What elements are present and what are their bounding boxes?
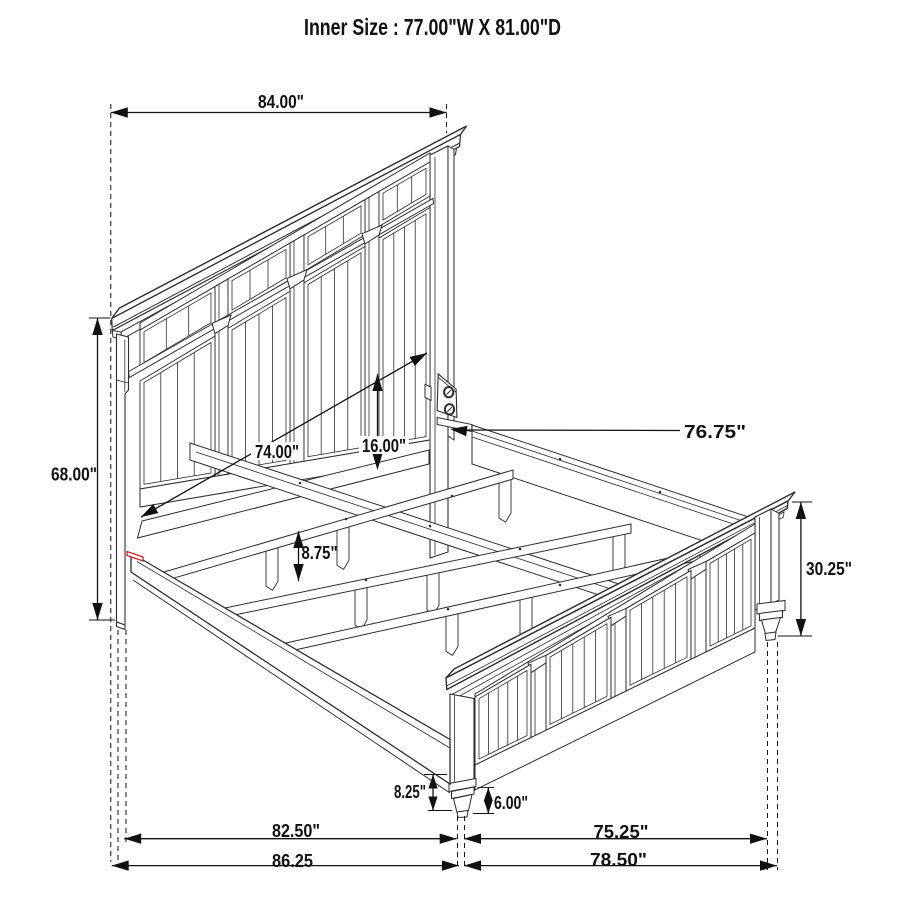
svg-text:16.00": 16.00"	[362, 436, 406, 456]
svg-text:74.00": 74.00"	[255, 442, 299, 462]
svg-text:6.00": 6.00"	[494, 793, 528, 813]
svg-text:78.50": 78.50"	[590, 850, 647, 870]
svg-text:86.25: 86.25	[272, 851, 313, 871]
svg-text:8.25": 8.25"	[394, 782, 426, 802]
svg-text:68.00": 68.00"	[51, 465, 97, 485]
svg-text:30.25": 30.25"	[806, 559, 852, 579]
svg-text:75.25": 75.25"	[594, 822, 649, 842]
svg-text:8.75": 8.75"	[302, 543, 338, 563]
svg-text:84.00": 84.00"	[258, 92, 304, 112]
svg-text:Inner Size : 77.00"W X 81.00"D: Inner Size : 77.00"W X 81.00"D	[304, 14, 561, 40]
svg-text:76.75": 76.75"	[684, 422, 746, 442]
svg-text:82.50": 82.50"	[272, 821, 320, 841]
